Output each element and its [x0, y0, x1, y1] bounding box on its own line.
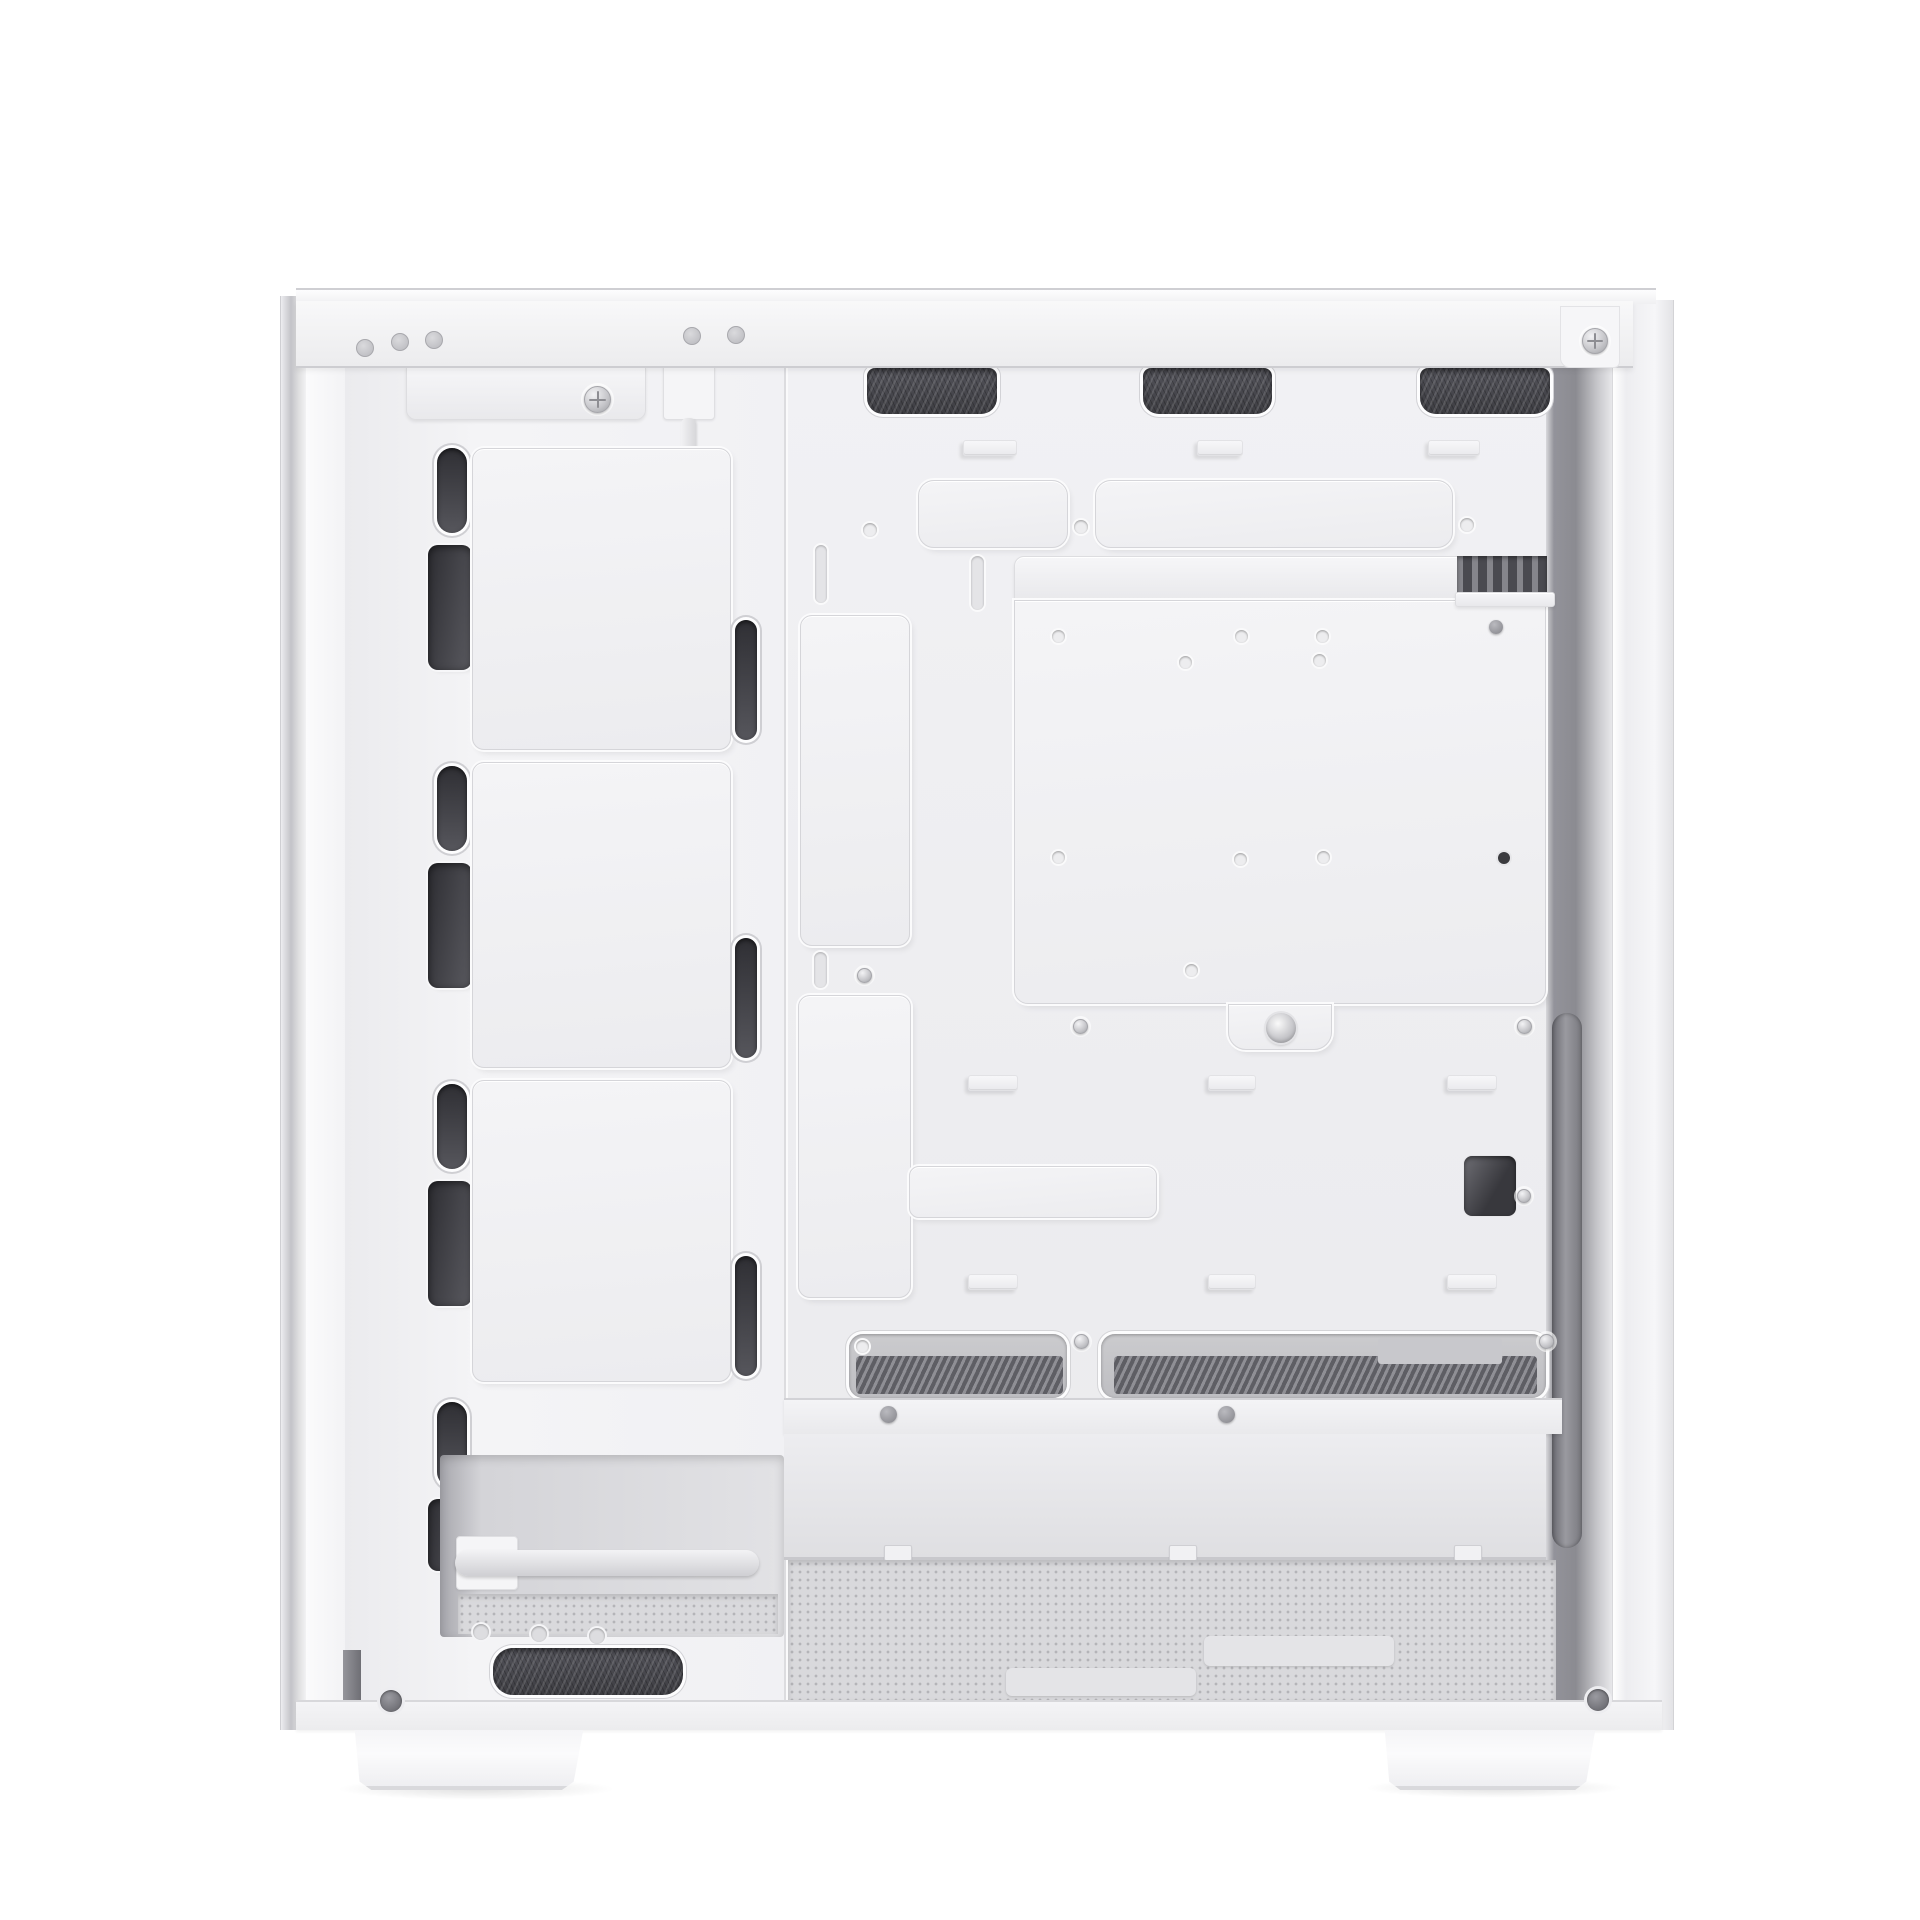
cable-cover-plate-upper [800, 615, 910, 946]
plate-hole-dark [1498, 852, 1510, 864]
notch-screw-right [1517, 1019, 1532, 1034]
mid-tab-3 [1447, 1075, 1497, 1091]
front-slot-wide-1 [428, 545, 472, 670]
shroud-rivet-1 [880, 1406, 897, 1423]
mid-tab-2 [1208, 1075, 1256, 1091]
front-bottom-mesh [493, 1648, 683, 1695]
tray-screw-1 [857, 968, 872, 983]
tray-hole-2 [1074, 520, 1088, 534]
recess-floor-mesh [458, 1594, 778, 1634]
rear-cutout [1464, 1156, 1516, 1216]
front-fan-plate-1 [472, 448, 731, 750]
fan-plate-right-pill-1 [735, 620, 757, 740]
rear-top-bar [1455, 592, 1555, 607]
low-tab-3 [1447, 1274, 1497, 1290]
tray-hole-1 [863, 523, 877, 537]
bracket-screw [584, 386, 611, 413]
grommet-cover-plate-long [1095, 480, 1453, 548]
wall-clip-3 [1454, 1545, 1482, 1561]
wall-clip-2 [1169, 1545, 1197, 1561]
tray-vslot-1 [815, 545, 827, 603]
tray-vslot-3 [814, 952, 827, 988]
rail-rivet-5 [727, 326, 745, 344]
front-slot-pill-3 [437, 1084, 467, 1169]
front-cable-connector [663, 360, 715, 420]
pc-case-product-photo [0, 0, 1920, 1920]
rail-rivet-3 [425, 331, 443, 349]
fan-plate-right-pill-3 [735, 1256, 757, 1376]
shroud-back-wall [784, 1434, 1546, 1560]
rear-cutout-screw [1517, 1189, 1531, 1203]
plate-hole-7 [1234, 853, 1247, 866]
psu-rail-pad-1 [1204, 1636, 1394, 1666]
low-tab-1 [968, 1274, 1018, 1290]
tray-vslot-2 [971, 556, 984, 610]
rail-screw-right [1582, 328, 1608, 354]
plate-hole-2 [1235, 630, 1248, 643]
front-fan-plate-2 [472, 762, 731, 1068]
notch-screw-left [1073, 1019, 1088, 1034]
front-fan-plate-3 [472, 1080, 731, 1382]
shroud-slot-hole [856, 1340, 869, 1353]
wall-clip-1 [884, 1545, 912, 1561]
plate-hole-5 [1313, 654, 1326, 667]
top-vent-mesh-1 [867, 368, 997, 414]
bottom-left-screw [380, 1690, 402, 1712]
tray-hole-3 [1460, 518, 1474, 532]
rear-top-vent-slats [1457, 556, 1547, 596]
shroud-slot-light-patch [1378, 1338, 1502, 1364]
front-slot-pill-1 [437, 448, 467, 533]
front-slot-wide-2 [428, 863, 472, 988]
psu-rail-pad-2 [1006, 1668, 1196, 1696]
cable-tie-tab-3 [1428, 440, 1480, 456]
plate-hole-3 [1316, 630, 1329, 643]
psu-hdd-mount-plate [1014, 600, 1546, 1004]
front-bottom-rod [455, 1550, 759, 1576]
rail-rivet-4 [683, 327, 701, 345]
shroud-vent-slot-left [849, 1334, 1067, 1398]
right-vertical-bar [1552, 1013, 1582, 1548]
standoff-1 [473, 1624, 489, 1640]
front-slot-pill-2 [437, 766, 467, 851]
front-edge-white-strip [306, 296, 346, 1730]
plate-hole-6 [1052, 851, 1065, 864]
shroud-slot-screw-right [1539, 1334, 1554, 1349]
shroud-rivet-2 [1218, 1406, 1235, 1423]
top-vent-mesh-3 [1420, 368, 1550, 414]
bottom-right-screw [1587, 1689, 1609, 1711]
top-rail [296, 301, 1633, 368]
cable-tie-tab-2 [1197, 440, 1243, 456]
right-foot [1378, 1730, 1602, 1790]
shroud-front-band [784, 1398, 1562, 1434]
grommet-cover-plate-small [918, 480, 1068, 548]
rail-rivet-2 [391, 333, 409, 351]
standoff-3 [589, 1628, 605, 1644]
thumbscrew [1266, 1013, 1296, 1043]
right-outer-wall [1612, 300, 1674, 1730]
cable-cover-arm-plate [909, 1166, 1157, 1218]
front-slot-wide-3 [428, 1181, 472, 1306]
plate-hole-4 [1179, 656, 1192, 669]
cable-tie-tab-1 [963, 440, 1017, 456]
bottom-rail [296, 1700, 1662, 1730]
fan-plate-right-pill-2 [735, 938, 757, 1058]
front-top-bracket [406, 366, 646, 420]
rear-dome-screw [1489, 620, 1503, 634]
low-tab-2 [1208, 1274, 1256, 1290]
cable-cover-plate-lower [798, 995, 911, 1298]
plate-hole-9 [1185, 964, 1198, 977]
rail-rivet-1 [356, 339, 374, 357]
shroud-slot-screw-mid [1074, 1334, 1089, 1349]
plate-hole-1 [1052, 630, 1065, 643]
standoff-2 [531, 1626, 547, 1642]
top-vent-mesh-2 [1143, 368, 1272, 414]
mid-tab-1 [968, 1075, 1018, 1091]
front-outer-edge [280, 296, 306, 1730]
left-foot [350, 1730, 588, 1790]
plate-hole-8 [1317, 851, 1330, 864]
